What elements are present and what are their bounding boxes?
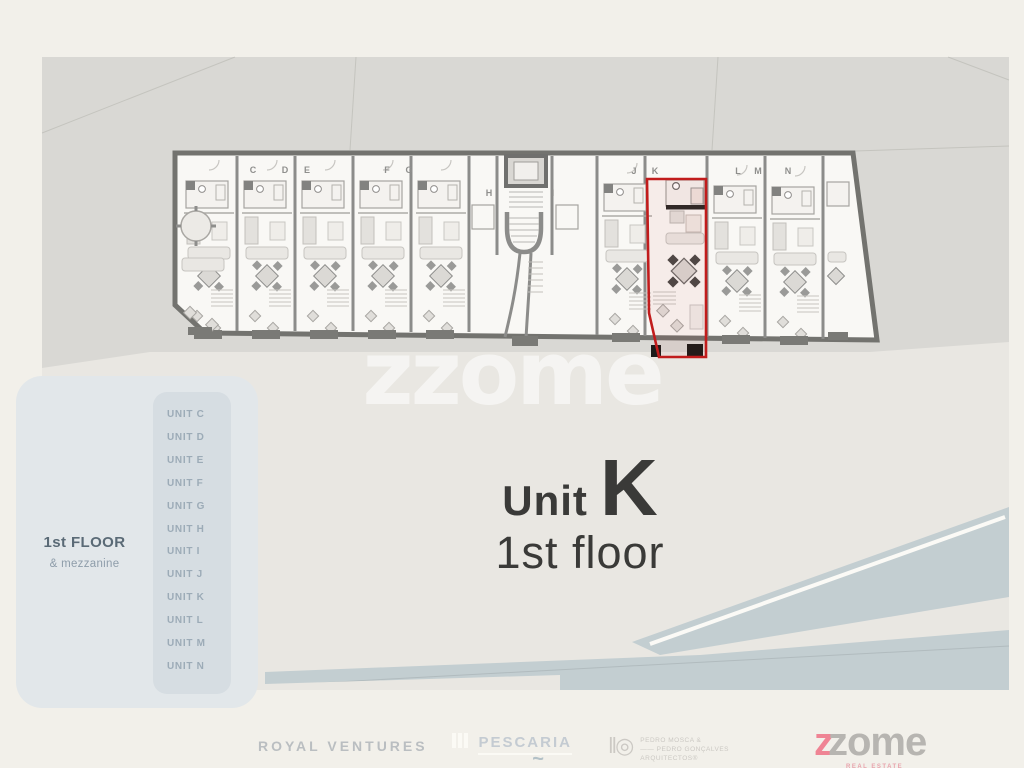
- sidebar-item-unit-n[interactable]: UNIT N: [167, 656, 231, 679]
- logo-royal-ventures: ROYAL VENTURES: [258, 738, 428, 754]
- plan-letter-n: N: [785, 166, 792, 176]
- plan-letter-d: D: [282, 165, 289, 175]
- sidebar-item-unit-e[interactable]: UNIT E: [167, 450, 231, 473]
- unit-title-floor: 1st floor: [420, 527, 740, 579]
- plan-letter-l: L: [735, 166, 741, 176]
- unit-title: Unit K 1st floor: [420, 452, 740, 579]
- sidebar-item-unit-i[interactable]: UNIT I: [167, 541, 231, 564]
- sidebar-item-unit-l[interactable]: UNIT L: [167, 610, 231, 633]
- architects-monogram-icon: ‖◎: [608, 733, 632, 759]
- logo-architects: ‖◎ PEDRO MOSCA & —— PEDRO GONÇALVES ARQU…: [608, 733, 729, 763]
- watermark: zzome: [362, 322, 661, 425]
- floor-sublabel: & mezzanine: [16, 558, 153, 570]
- sidebar-item-unit-h[interactable]: UNIT H: [167, 519, 231, 542]
- zome-wordmark: zome: [828, 722, 926, 762]
- sidebar-item-unit-j[interactable]: UNIT J: [167, 564, 231, 587]
- sidebar-item-unit-f[interactable]: UNIT F: [167, 473, 231, 496]
- sidebar-item-unit-k[interactable]: UNIT K: [167, 587, 231, 610]
- plan-letter-i: I: [552, 188, 555, 198]
- pescaria-tilde-icon: ~: [452, 755, 544, 763]
- logo-zome: z zome REAL ESTATE: [814, 722, 926, 768]
- plan-letter-f: F: [384, 165, 390, 175]
- sidebar-item-unit-g[interactable]: UNIT G: [167, 496, 231, 519]
- pescaria-bars-icon: [452, 733, 470, 753]
- page: zzome CDEFGHIJKLMN 1st FLOOR & mezzanine…: [0, 0, 1024, 768]
- sidebar-item-unit-c[interactable]: UNIT C: [167, 404, 231, 427]
- plan-letter-e: E: [304, 165, 310, 175]
- architects-line3: ARQUITECTOS®: [640, 754, 729, 763]
- plan-letter-k: K: [652, 166, 659, 176]
- unit-title-letter: K: [600, 452, 658, 524]
- plan-letter-j: J: [631, 166, 636, 176]
- sidebar-item-unit-d[interactable]: UNIT D: [167, 427, 231, 450]
- sidebar-panel: 1st FLOOR & mezzanine UNIT CUNIT DUNIT E…: [16, 376, 258, 708]
- plan-letter-h: H: [486, 188, 493, 198]
- floor-label: 1st FLOOR: [16, 534, 153, 551]
- sidebar-item-unit-m[interactable]: UNIT M: [167, 633, 231, 656]
- zome-subtitle: REAL ESTATE: [846, 764, 926, 768]
- plan-letter-c: C: [250, 165, 257, 175]
- logo-pescaria: PESCARIA ~: [452, 733, 572, 763]
- unit-list: UNIT CUNIT DUNIT EUNIT FUNIT GUNIT HUNIT…: [153, 392, 231, 694]
- pescaria-wordmark: PESCARIA: [478, 734, 572, 755]
- plan-letter-m: M: [754, 166, 762, 176]
- architects-line1: PEDRO MOSCA &: [640, 736, 729, 745]
- plan-letter-g: G: [405, 165, 412, 175]
- unit-title-prefix: Unit: [502, 477, 588, 525]
- architects-line2: —— PEDRO GONÇALVES: [640, 745, 729, 754]
